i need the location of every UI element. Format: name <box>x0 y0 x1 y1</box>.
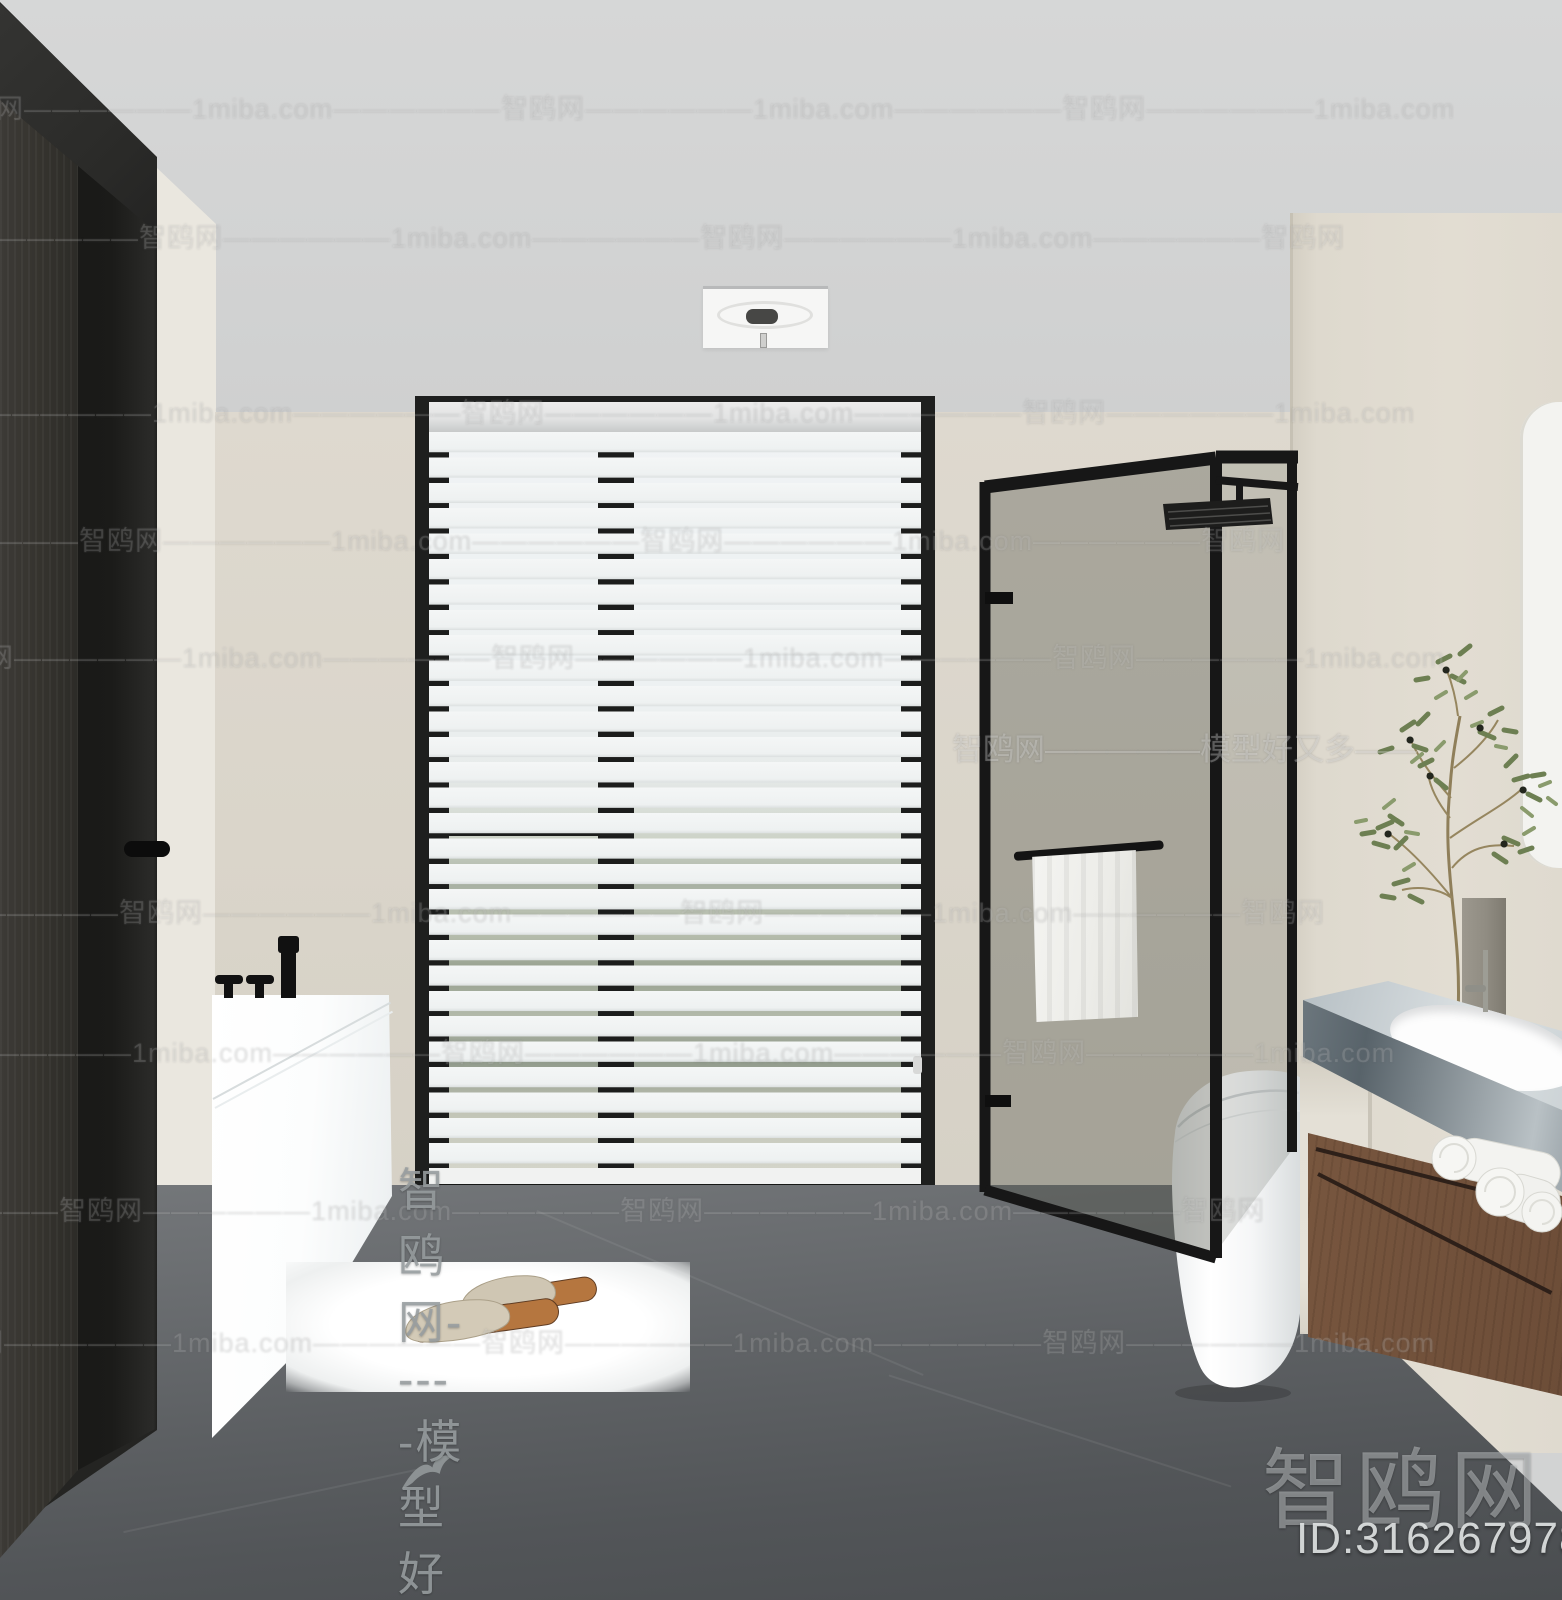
window <box>415 396 935 1206</box>
tub-cross-handle <box>246 975 274 984</box>
blind-bottomrail <box>429 1168 921 1184</box>
door-glass-pane <box>0 0 80 1565</box>
ceiling-light-pull <box>760 333 767 348</box>
hanging-towel <box>1030 850 1138 1022</box>
tub-handle-stem <box>255 984 264 998</box>
slippers <box>398 1266 598 1362</box>
tub-handle-stem <box>224 984 233 998</box>
tub-spout-cap <box>278 936 299 953</box>
bathroom-render: 智鸥网——————1miba.com——————智鸥网——————1miba.c… <box>0 0 1562 1600</box>
olive-plant <box>1318 638 1562 1020</box>
sink-faucet <box>1483 950 1488 1012</box>
rolled-towels <box>1420 1120 1562 1230</box>
shower-door-hinge <box>985 1095 1011 1107</box>
blind-slats <box>429 432 921 1168</box>
tub-cross-handle <box>215 975 243 984</box>
ceiling-light <box>703 286 828 348</box>
door-handle <box>124 841 170 857</box>
left-wall <box>157 168 216 1248</box>
blind-control-knob <box>913 1056 922 1074</box>
ceiling-light-core <box>746 309 778 324</box>
sink-faucet-spout <box>1465 985 1486 992</box>
shower-door-handle <box>985 592 1013 604</box>
blind-headrail <box>429 402 921 432</box>
